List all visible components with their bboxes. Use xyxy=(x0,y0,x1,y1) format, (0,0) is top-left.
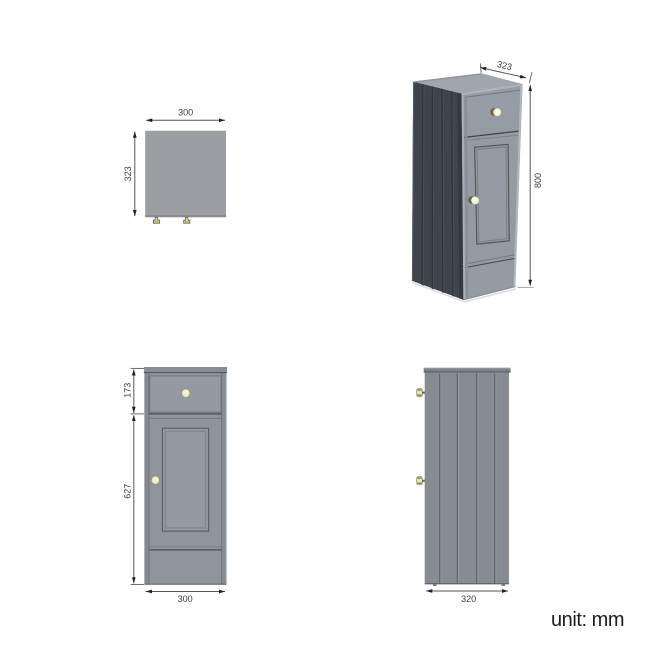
svg-text:320: 320 xyxy=(461,594,476,604)
svg-text:627: 627 xyxy=(122,484,132,499)
svg-text:300: 300 xyxy=(178,594,193,604)
svg-text:323: 323 xyxy=(496,59,513,72)
svg-text:173: 173 xyxy=(122,383,132,398)
svg-text:unit: mm: unit: mm xyxy=(551,609,624,631)
svg-text:800: 800 xyxy=(533,173,543,188)
svg-text:323: 323 xyxy=(123,166,133,181)
svg-text:300: 300 xyxy=(178,108,193,118)
